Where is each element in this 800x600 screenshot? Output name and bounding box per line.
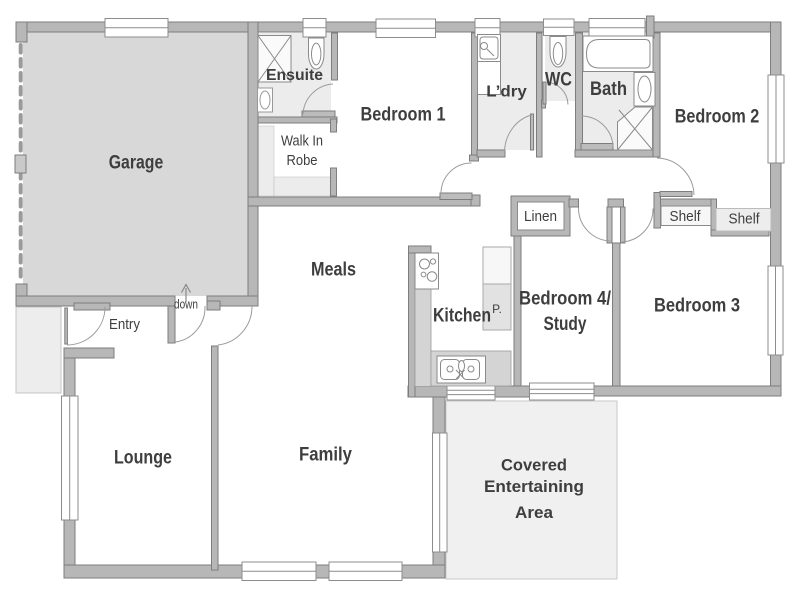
svg-text:Bath: Bath [590, 79, 627, 100]
svg-text:L’dry: L’dry [486, 84, 527, 101]
svg-text:Lounge: Lounge [114, 448, 172, 469]
svg-text:Shelf: Shelf [670, 208, 702, 225]
svg-text:Shelf: Shelf [729, 211, 761, 228]
svg-text:Meals: Meals [311, 260, 356, 281]
svg-text:WC: WC [545, 70, 572, 91]
svg-text:Bedroom 1: Bedroom 1 [361, 105, 446, 126]
svg-text:Walk In: Walk In [281, 134, 323, 150]
svg-text:Bedroom 2: Bedroom 2 [675, 107, 760, 128]
svg-text:down: down [174, 298, 198, 312]
svg-text:Linen: Linen [524, 208, 557, 225]
svg-text:Robe: Robe [287, 153, 318, 169]
svg-text:Garage: Garage [109, 153, 164, 174]
svg-text:Bedroom 4/: Bedroom 4/ [519, 289, 612, 310]
svg-text:Family: Family [299, 445, 352, 466]
svg-text:Entry: Entry [109, 316, 140, 333]
svg-text:Ensuite: Ensuite [266, 67, 323, 84]
svg-text:Kitchen: Kitchen [433, 306, 491, 327]
svg-text:P.: P. [492, 302, 502, 316]
svg-text:Entertaining: Entertaining [484, 477, 584, 496]
svg-text:Area: Area [515, 503, 554, 522]
svg-text:Bedroom 3: Bedroom 3 [654, 296, 740, 317]
svg-text:Study: Study [544, 314, 587, 335]
svg-text:Covered: Covered [501, 456, 567, 475]
